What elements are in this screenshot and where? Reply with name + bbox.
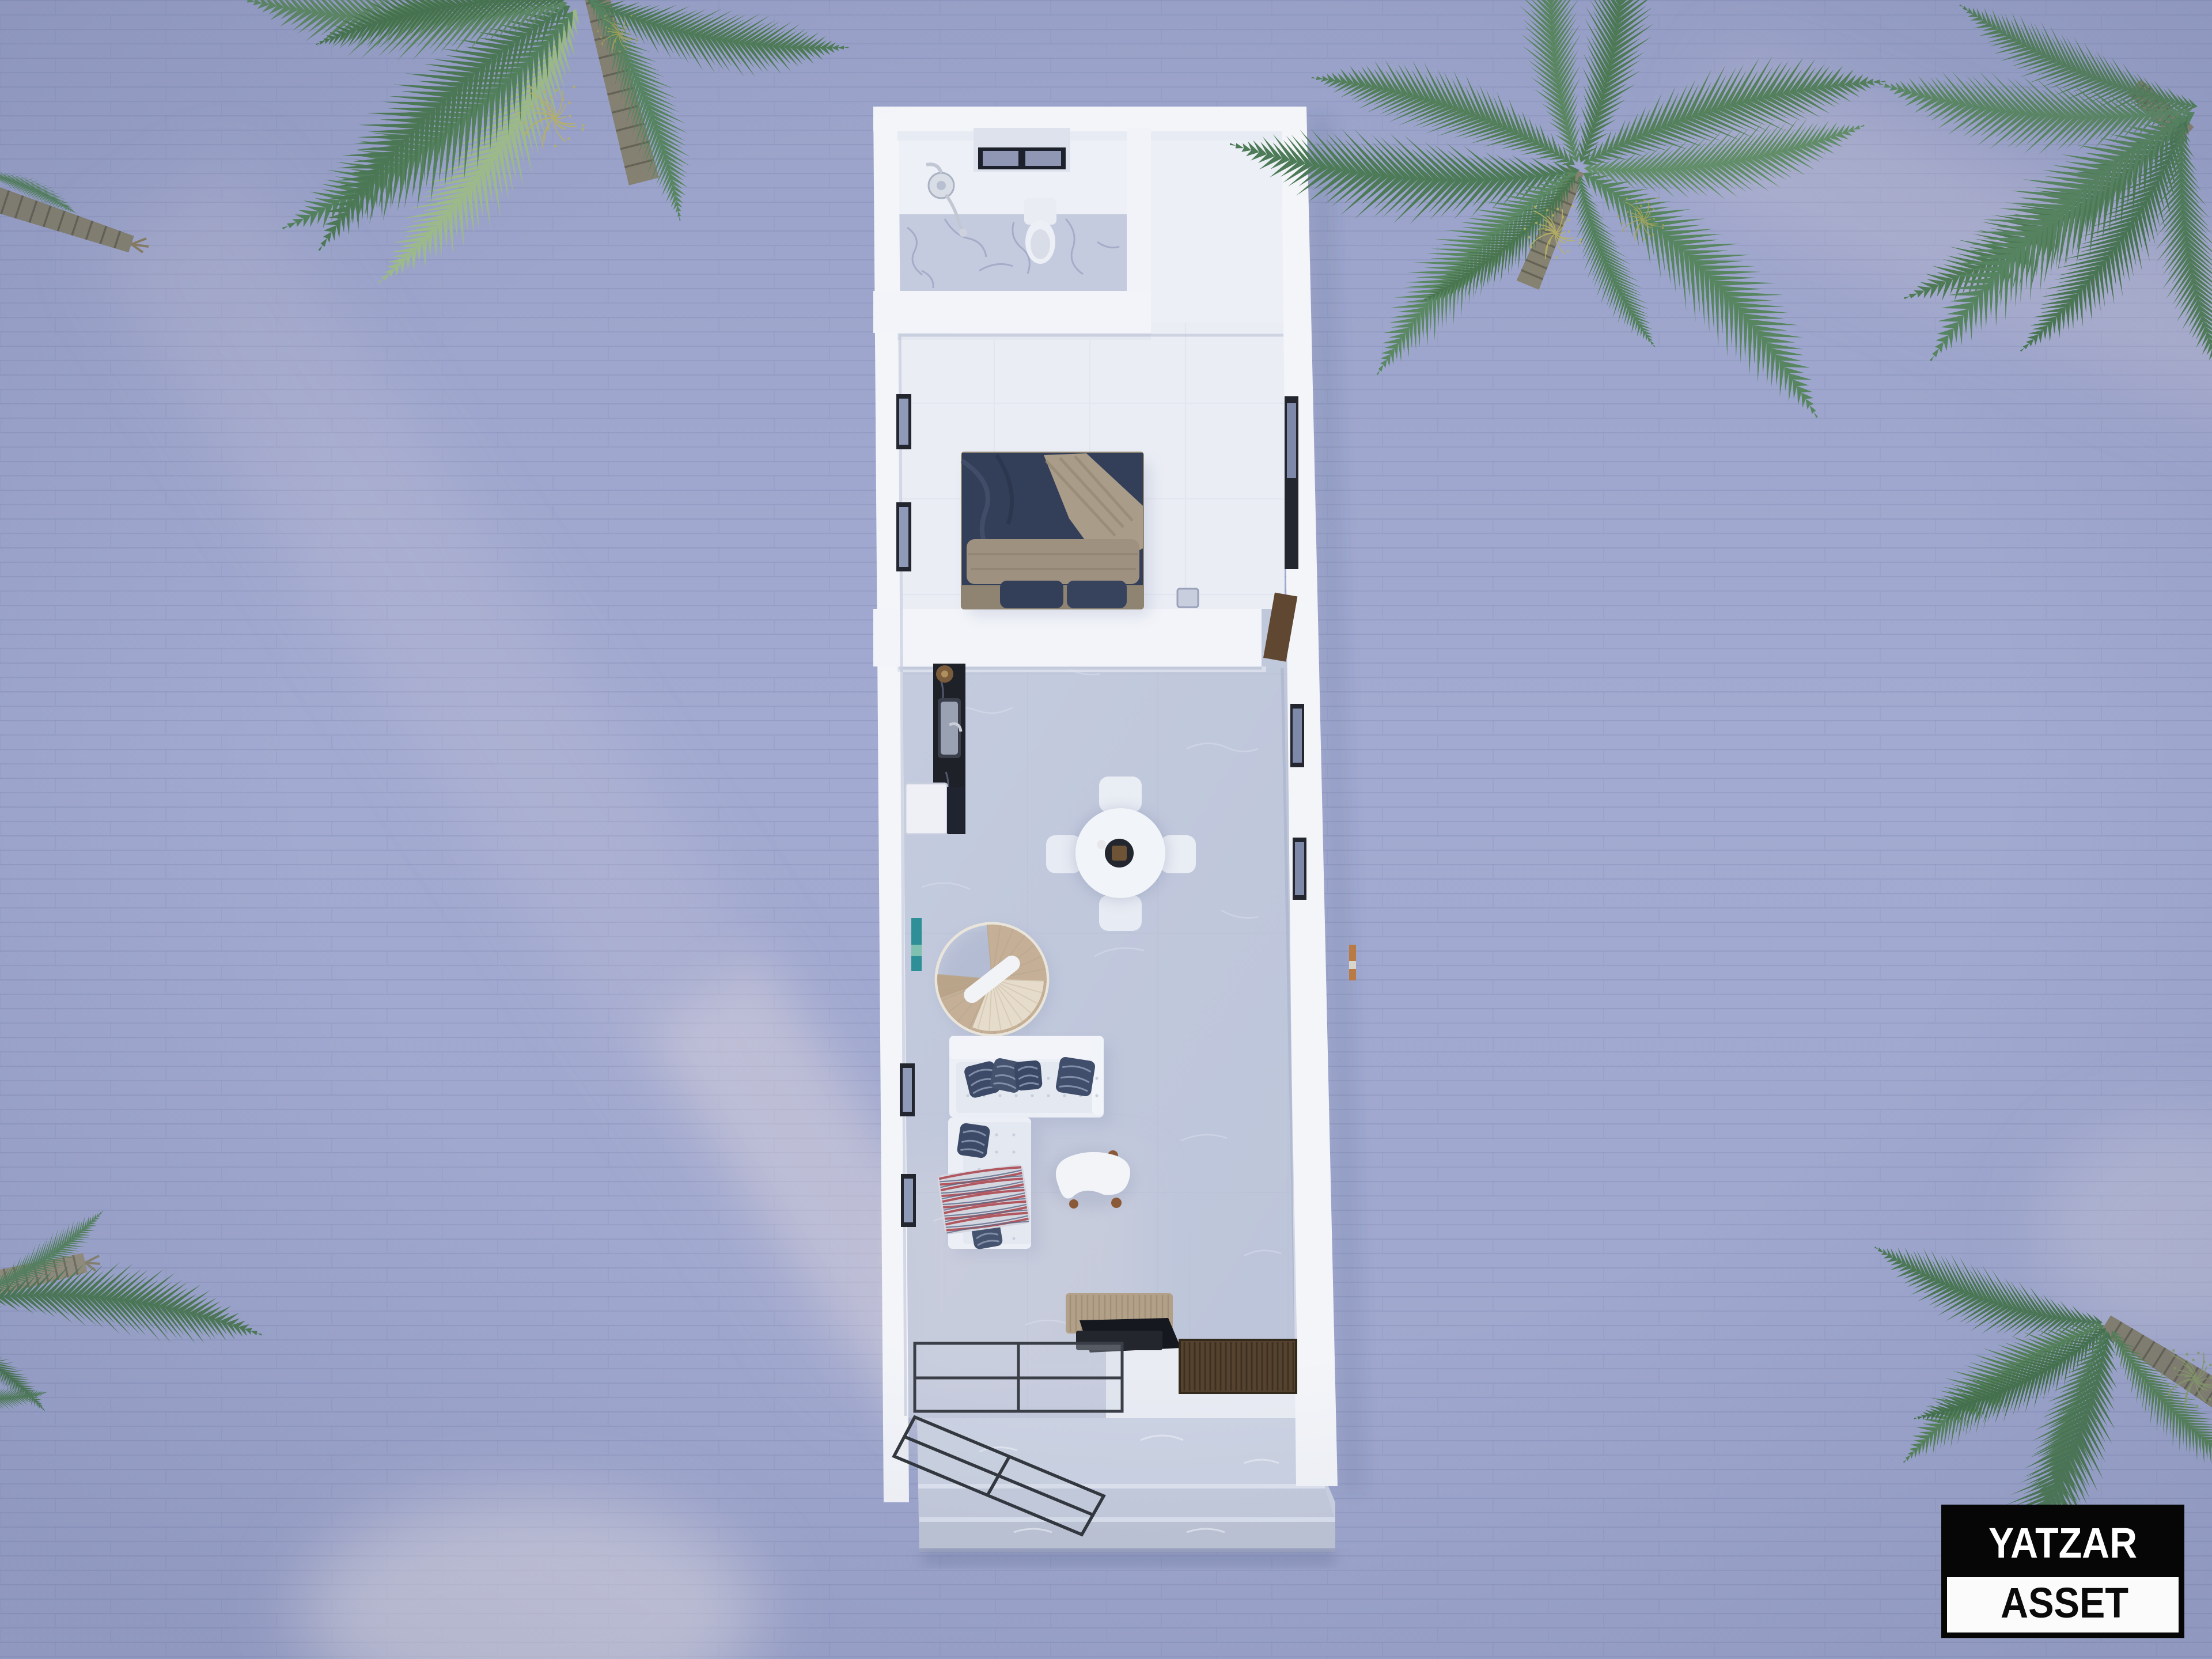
svg-text:ASSET: ASSET [2001,1579,2128,1627]
svg-text:YATZAR: YATZAR [1988,1519,2137,1567]
